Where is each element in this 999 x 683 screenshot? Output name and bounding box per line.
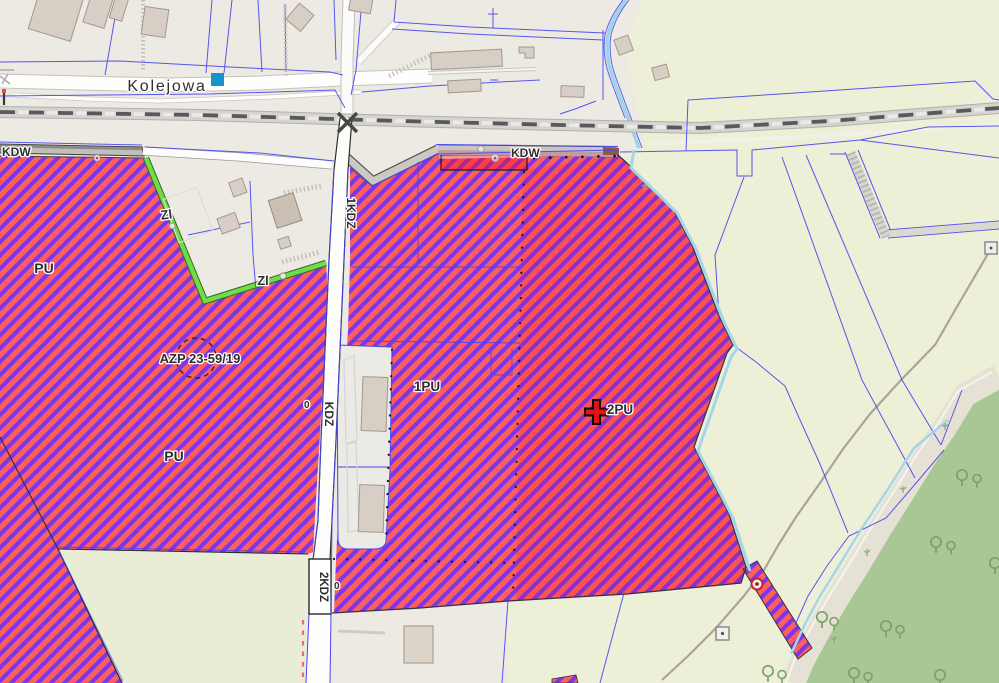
svg-text:1PU: 1PU	[414, 379, 440, 394]
svg-text:AZP 23-59/19: AZP 23-59/19	[160, 351, 241, 366]
svg-text:1KDZ: 1KDZ	[344, 197, 358, 228]
svg-text:0: 0	[334, 581, 340, 592]
svg-text:2KDZ: 2KDZ	[317, 572, 329, 602]
svg-text:KDZ: KDZ	[322, 402, 336, 427]
svg-text:KDW: KDW	[2, 145, 31, 159]
svg-text:2PU: 2PU	[607, 402, 633, 417]
svg-text:PU: PU	[164, 448, 183, 464]
svg-text:Zl: Zl	[257, 273, 269, 288]
svg-text:Kolejowa: Kolejowa	[127, 78, 206, 95]
svg-text:Zl: Zl	[160, 206, 174, 222]
svg-text:0: 0	[304, 400, 310, 411]
svg-text:PU: PU	[34, 260, 53, 276]
svg-text:KDW: KDW	[511, 146, 540, 160]
